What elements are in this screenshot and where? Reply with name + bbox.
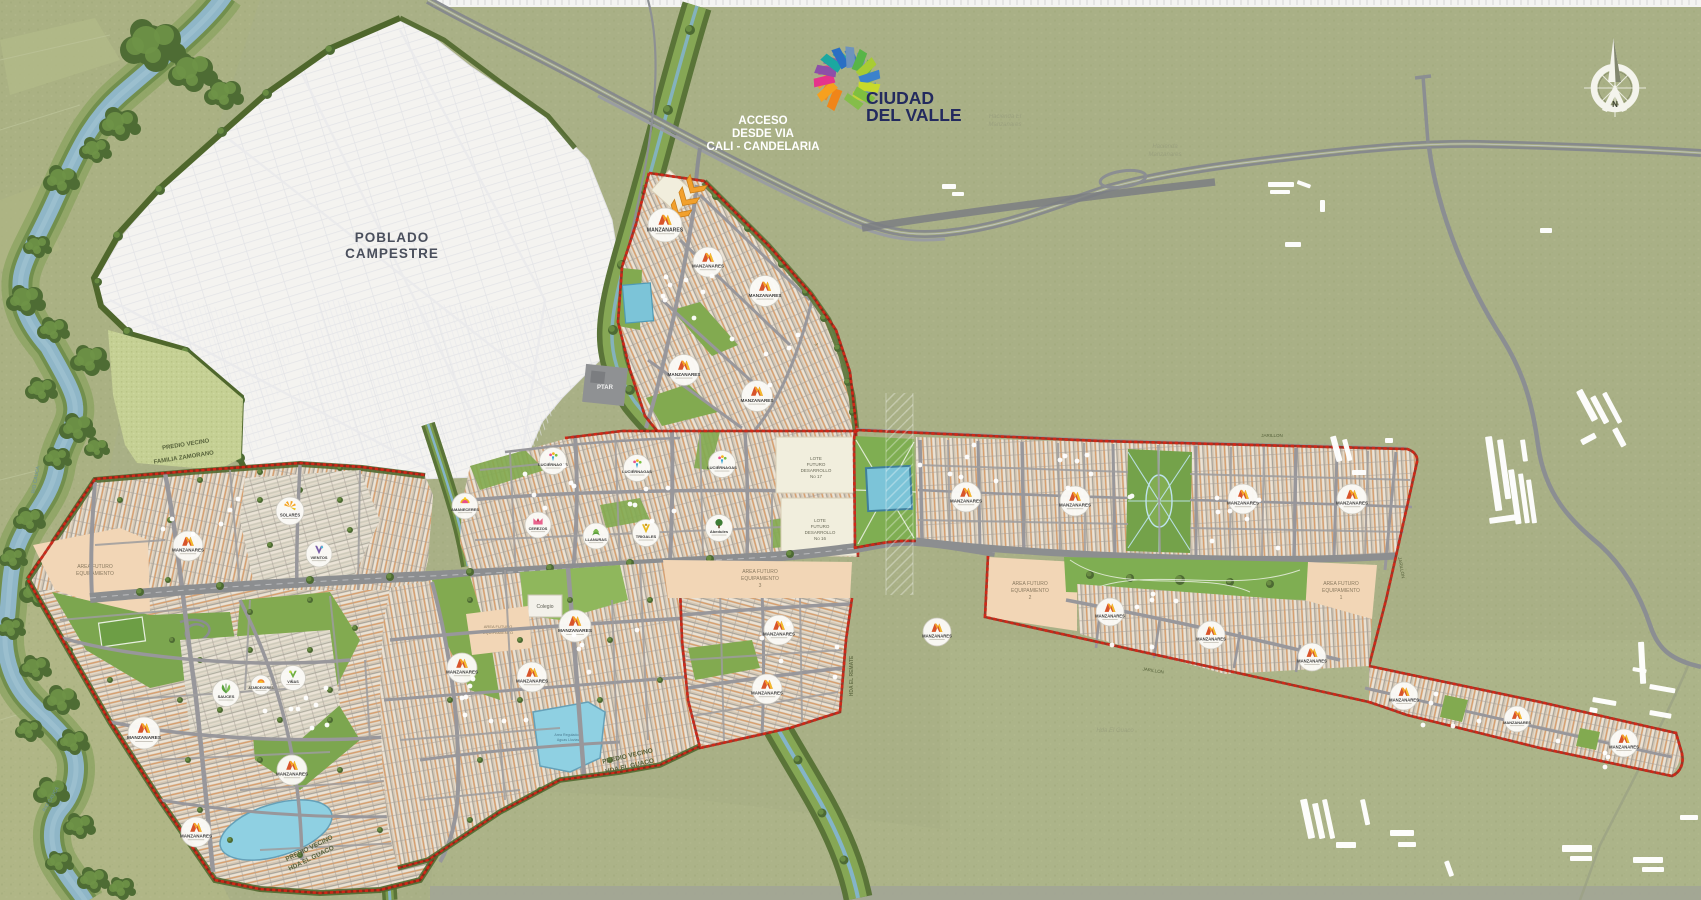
svg-text:MANZANARES: MANZANARES	[749, 293, 782, 298]
svg-text:VIÑAS: VIÑAS	[287, 679, 299, 684]
svg-text:Manzanares: Manzanares	[988, 122, 1021, 128]
svg-text:2: 2	[1029, 595, 1032, 601]
svg-text:Hacienda: Hacienda	[1152, 144, 1178, 150]
svg-text:MANZANARES: MANZANARES	[180, 834, 212, 839]
svg-text:CEREZOS: CEREZOS	[529, 526, 548, 531]
svg-text:ATARDECERES: ATARDECERES	[248, 686, 274, 690]
svg-text:LOTE: LOTE	[810, 456, 822, 461]
svg-text:MANZANARES: MANZANARES	[1297, 658, 1327, 663]
svg-text:AREA FUTURO: AREA FUTURO	[742, 569, 778, 575]
svg-text:MANZANARES: MANZANARES	[922, 633, 952, 638]
svg-text:Manzanares: Manzanares	[1148, 152, 1181, 158]
svg-text:EQUIPAMIENTO: EQUIPAMIENTO	[76, 571, 114, 577]
svg-text:MANZANARES: MANZANARES	[741, 398, 774, 403]
svg-text:DESDE VIA: DESDE VIA	[732, 128, 794, 140]
svg-text:MANZANARES: MANZANARES	[516, 679, 548, 684]
svg-text:Aguas Lluvias: Aguas Lluvias	[557, 738, 580, 742]
svg-text:DEL VALLE: DEL VALLE	[866, 105, 962, 125]
svg-text:Hda El Guaco: Hda El Guaco	[1096, 728, 1134, 734]
svg-text:Colegio: Colegio	[537, 604, 554, 610]
svg-text:FUTURO: FUTURO	[807, 462, 826, 467]
svg-text:MANZANARES: MANZANARES	[127, 735, 162, 741]
svg-text:EQUIPAMIENTO: EQUIPAMIENTO	[1322, 588, 1360, 594]
svg-text:MANZANARES: MANZANARES	[668, 372, 701, 377]
svg-text:Hacienda El: Hacienda El	[989, 114, 1022, 120]
svg-text:TRIGALES: TRIGALES	[636, 534, 657, 539]
svg-text:No 16: No 16	[814, 536, 827, 541]
svg-text:ACCESO: ACCESO	[738, 115, 787, 127]
svg-text:POBLADO: POBLADO	[355, 230, 430, 245]
svg-text:MANZANARES: MANZANARES	[751, 691, 783, 696]
svg-text:Abedules: Abedules	[710, 529, 729, 534]
svg-text:3: 3	[759, 583, 762, 589]
svg-text:MANZANARES: MANZANARES	[692, 264, 724, 269]
svg-text:MANZANARES: MANZANARES	[1503, 720, 1531, 725]
svg-text:SOLARES: SOLARES	[280, 512, 300, 517]
svg-text:DESARROLLO: DESARROLLO	[805, 530, 836, 535]
svg-text:AREA FUTURO: AREA FUTURO	[1323, 581, 1359, 587]
svg-text:DESARROLLO: DESARROLLO	[801, 468, 832, 473]
svg-text:MANZANARES: MANZANARES	[446, 670, 478, 675]
svg-text:MANZANARES: MANZANARES	[1609, 744, 1639, 749]
svg-text:PTAR: PTAR	[597, 385, 614, 391]
svg-text:N: N	[1612, 100, 1618, 109]
svg-text:MANZANARES: MANZANARES	[1095, 613, 1125, 618]
svg-text:MANZANARES: MANZANARES	[172, 548, 204, 553]
svg-text:MANZANARES: MANZANARES	[1059, 503, 1091, 508]
svg-text:JARILLON: JARILLON	[1261, 433, 1283, 438]
svg-text:MANZANARES: MANZANARES	[1196, 636, 1226, 641]
svg-text:LLANURAS: LLANURAS	[585, 537, 607, 542]
svg-text:AREA FUTURO: AREA FUTURO	[1012, 581, 1048, 587]
svg-text:LOTE: LOTE	[814, 518, 826, 523]
svg-text:CAMPESTRE: CAMPESTRE	[345, 246, 439, 261]
svg-text:VIENTOS: VIENTOS	[310, 555, 327, 560]
svg-text:1: 1	[1340, 595, 1343, 601]
svg-text:Area Reguladora: Area Reguladora	[554, 733, 581, 737]
svg-text:MANZANARES: MANZANARES	[1336, 501, 1368, 506]
svg-text:FUTURO: FUTURO	[811, 524, 830, 529]
svg-text:MANZANARES: MANZANARES	[1227, 501, 1259, 506]
svg-text:EQUIPAMIENTO: EQUIPAMIENTO	[1011, 588, 1049, 594]
svg-text:AREA FUTURO: AREA FUTURO	[77, 564, 113, 570]
svg-text:HDA EL REMATE: HDA EL REMATE	[849, 655, 855, 696]
svg-text:No 17: No 17	[810, 474, 823, 479]
svg-text:MANZANARES: MANZANARES	[950, 499, 982, 504]
svg-text:MANZANARES: MANZANARES	[763, 632, 795, 637]
svg-text:SAUCES: SAUCES	[218, 694, 235, 699]
svg-text:LUCIÉRNAGAS: LUCIÉRNAGAS	[707, 465, 737, 470]
svg-text:AMANECERES: AMANECERES	[451, 507, 479, 512]
svg-text:CALI - CANDELARIA: CALI - CANDELARIA	[706, 141, 819, 153]
svg-text:LUCIÉRNAGAS: LUCIÉRNAGAS	[622, 469, 652, 474]
svg-text:MANZANARES: MANZANARES	[647, 227, 684, 233]
svg-text:MANZANARES: MANZANARES	[1389, 697, 1419, 702]
svg-text:EQUIPAMIENTO: EQUIPAMIENTO	[741, 576, 779, 582]
svg-text:MANZANARES: MANZANARES	[276, 772, 308, 777]
